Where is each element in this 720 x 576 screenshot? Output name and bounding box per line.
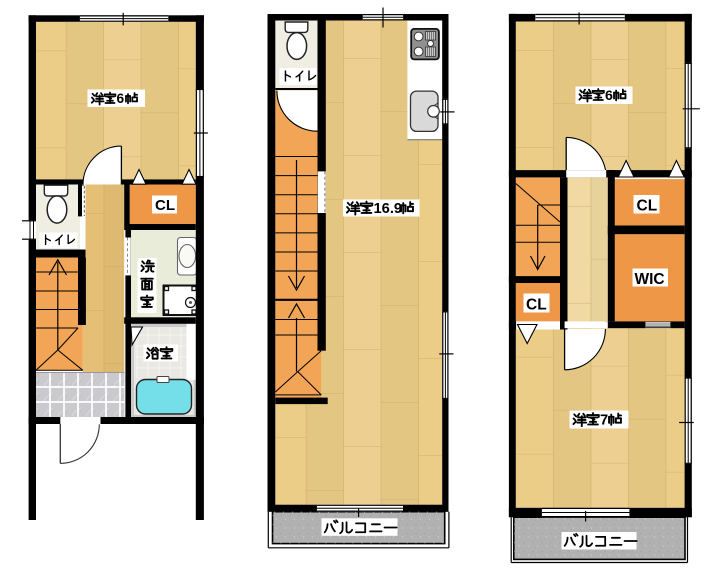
svg-text:WIC: WIC — [635, 271, 665, 288]
svg-text:6: 6 — [605, 88, 613, 104]
svg-text:CL: CL — [155, 197, 175, 214]
svg-text:16.9: 16.9 — [374, 201, 403, 217]
svg-text:CL: CL — [637, 198, 658, 215]
svg-text:7: 7 — [600, 413, 608, 429]
svg-text:6: 6 — [117, 91, 125, 106]
svg-text:CL: CL — [526, 297, 547, 314]
